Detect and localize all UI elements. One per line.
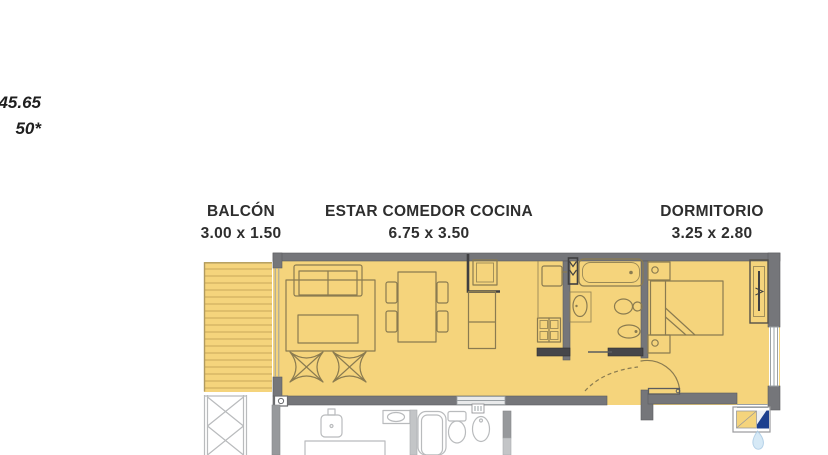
neighbor-sill-lines [737, 405, 768, 408]
tub-inner [422, 415, 443, 455]
basin-drain [575, 305, 577, 307]
door-leaf [649, 389, 680, 395]
neighbor-bathtub [418, 412, 446, 455]
water-drop-logo [753, 431, 764, 449]
railing-cross-braces [208, 397, 244, 455]
neighbor-table [305, 441, 385, 455]
neighbor-washbasin [383, 411, 410, 424]
neighbor-balcony-railing [205, 395, 247, 455]
floor-plan-page: 45.65 50* BALCÓN 3.00 x 1.50 ESTAR COMED… [0, 0, 828, 455]
wall-top [273, 253, 780, 261]
toilet-tank [448, 412, 466, 422]
wall-bath-bedroom-divider [641, 261, 648, 358]
wall-bottom [273, 396, 607, 405]
bidet-bowl [473, 417, 490, 442]
sink-body [321, 415, 342, 437]
corner-column [275, 396, 288, 406]
apartment-floor [273, 253, 780, 405]
bedroom-window [769, 327, 779, 386]
tub-drain [629, 271, 633, 275]
wall-balcony-stub-bottom [273, 377, 282, 396]
balcony-floor [204, 262, 272, 392]
wall-right-bottom-stub [768, 386, 780, 410]
service-niche [733, 407, 770, 449]
neighbor-wall [410, 410, 417, 455]
window-glass-lines [769, 327, 779, 386]
neighbor-sink [321, 409, 342, 437]
wall-balcony-stub-top [273, 253, 282, 268]
neighbor-bidet [473, 417, 490, 442]
floor-plan-drawing [0, 0, 828, 455]
toilet-bowl [449, 421, 466, 443]
balcony-deck [204, 262, 272, 392]
bidet-faucet [635, 330, 638, 333]
wall-bath-door-jamb [608, 348, 643, 356]
basin-bowl [388, 413, 405, 422]
wall-right [768, 253, 780, 327]
neighbor-wall-light [503, 438, 511, 455]
wall-kitchen-low [537, 348, 570, 356]
bottom-wall-window [457, 397, 505, 414]
neighbor-wall-stub [272, 405, 280, 455]
sink-drain [330, 425, 333, 428]
column-box [275, 396, 288, 406]
sink-faucet [328, 409, 335, 415]
neighbor-wall-dark [503, 411, 511, 438]
railing-rails [205, 395, 247, 455]
bidet-faucet [480, 419, 483, 422]
neighbor-toilet [448, 412, 466, 444]
